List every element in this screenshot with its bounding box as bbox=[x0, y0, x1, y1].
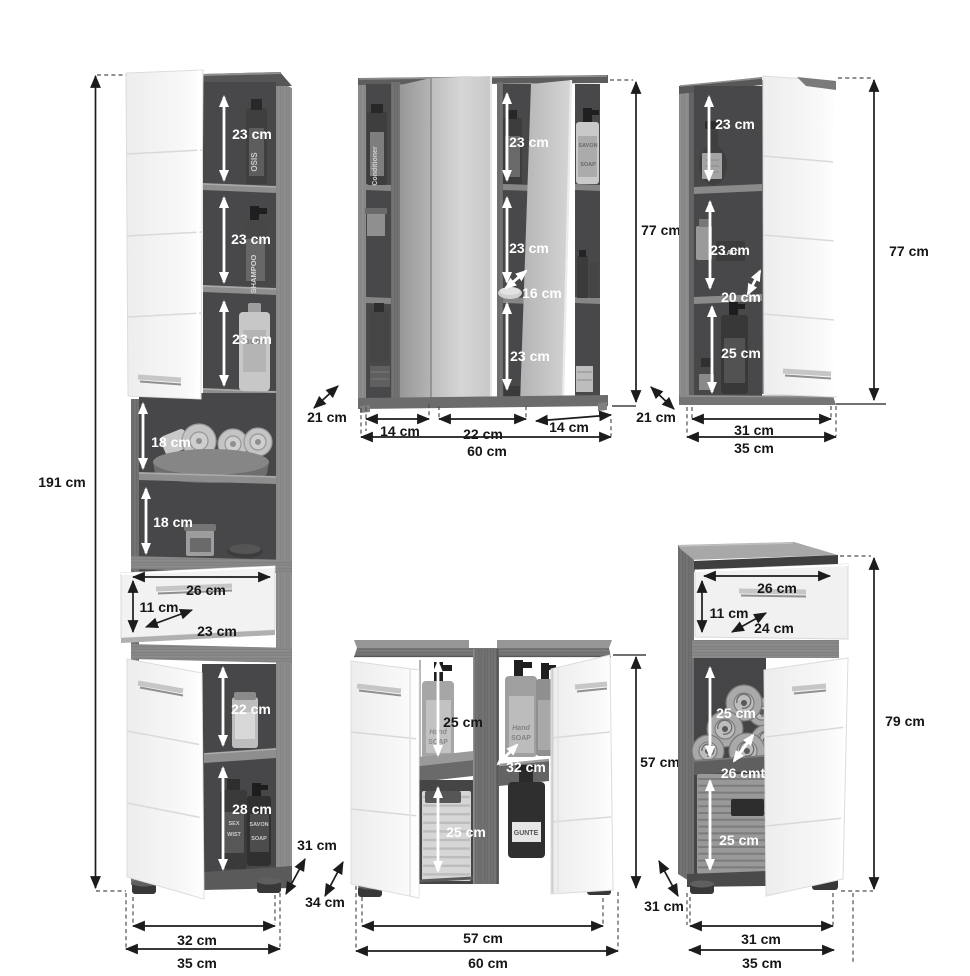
svg-text:26 cm: 26 cm bbox=[186, 582, 226, 598]
svg-text:23 cm: 23 cm bbox=[710, 242, 750, 258]
svg-text:25 cm: 25 cm bbox=[719, 832, 759, 848]
svg-text:11 cm: 11 cm bbox=[710, 605, 749, 621]
svg-text:21 cm: 21 cm bbox=[307, 409, 347, 425]
svg-text:77 cm: 77 cm bbox=[641, 222, 681, 238]
svg-text:OSIS: OSIS bbox=[250, 152, 259, 172]
svg-text:SEX: SEX bbox=[228, 821, 239, 827]
svg-text:SOAP: SOAP bbox=[251, 836, 267, 842]
svg-text:Conditioner: Conditioner bbox=[372, 146, 379, 186]
svg-text:23 cm: 23 cm bbox=[509, 134, 549, 150]
svg-text:23 cm: 23 cm bbox=[232, 126, 272, 142]
svg-text:22 cm: 22 cm bbox=[231, 701, 271, 717]
svg-text:23 cm: 23 cm bbox=[232, 331, 272, 347]
svg-text:25 cm: 25 cm bbox=[716, 705, 756, 721]
svg-text:31 cm: 31 cm bbox=[734, 422, 774, 438]
svg-text:23 cm: 23 cm bbox=[510, 348, 550, 364]
svg-text:24 cm: 24 cm bbox=[754, 620, 794, 636]
svg-text:32 cm: 32 cm bbox=[177, 932, 217, 948]
svg-text:16 cm: 16 cm bbox=[522, 285, 562, 301]
svg-text:191 cm: 191 cm bbox=[38, 474, 85, 490]
svg-text:35 cm: 35 cm bbox=[177, 955, 217, 971]
svg-text:31 cm: 31 cm bbox=[297, 837, 337, 853]
svg-text:28 cm: 28 cm bbox=[232, 801, 272, 817]
svg-text:34 cm: 34 cm bbox=[305, 894, 345, 910]
svg-text:20 cm: 20 cm bbox=[721, 289, 761, 305]
svg-text:SOAP: SOAP bbox=[511, 735, 531, 742]
svg-text:57 cm: 57 cm bbox=[640, 754, 680, 770]
svg-text:23 cm: 23 cm bbox=[197, 623, 237, 639]
svg-text:SHAMPOO: SHAMPOO bbox=[249, 254, 258, 293]
svg-text:23 cm: 23 cm bbox=[509, 240, 549, 256]
svg-text:SAVON: SAVON bbox=[578, 143, 597, 149]
svg-text:22 cm: 22 cm bbox=[463, 426, 503, 442]
svg-text:26 cmt: 26 cmt bbox=[721, 765, 766, 781]
svg-text:60 cm: 60 cm bbox=[468, 955, 508, 971]
svg-text:26 cm: 26 cm bbox=[757, 580, 797, 596]
svg-text:GUNTE: GUNTE bbox=[514, 830, 539, 837]
svg-text:21 cm: 21 cm bbox=[636, 409, 676, 425]
svg-text:25 cm: 25 cm bbox=[446, 824, 486, 840]
svg-text:14 cm: 14 cm bbox=[549, 419, 589, 435]
svg-text:79 cm: 79 cm bbox=[885, 713, 925, 729]
svg-text:57 cm: 57 cm bbox=[463, 930, 503, 946]
svg-text:SOAP: SOAP bbox=[580, 162, 596, 168]
svg-text:31 cm: 31 cm bbox=[741, 931, 781, 947]
svg-text:32 cm: 32 cm bbox=[506, 759, 546, 775]
svg-text:18 cm: 18 cm bbox=[151, 434, 191, 450]
svg-text:25 cm: 25 cm bbox=[443, 714, 483, 730]
svg-text:60 cm: 60 cm bbox=[467, 443, 507, 459]
svg-text:WIST: WIST bbox=[227, 832, 241, 838]
svg-text:77 cm: 77 cm bbox=[889, 243, 929, 259]
svg-text:SAVON: SAVON bbox=[249, 822, 268, 828]
svg-text:11 cm: 11 cm bbox=[140, 599, 179, 615]
svg-text:23 cm: 23 cm bbox=[231, 231, 271, 247]
svg-text:23 cm: 23 cm bbox=[715, 116, 755, 132]
svg-text:18 cm: 18 cm bbox=[153, 514, 193, 530]
svg-text:Hand: Hand bbox=[512, 725, 530, 732]
svg-text:35 cm: 35 cm bbox=[742, 955, 782, 971]
svg-text:25 cm: 25 cm bbox=[721, 345, 761, 361]
svg-text:35 cm: 35 cm bbox=[734, 440, 774, 456]
svg-text:31 cm: 31 cm bbox=[644, 898, 684, 914]
